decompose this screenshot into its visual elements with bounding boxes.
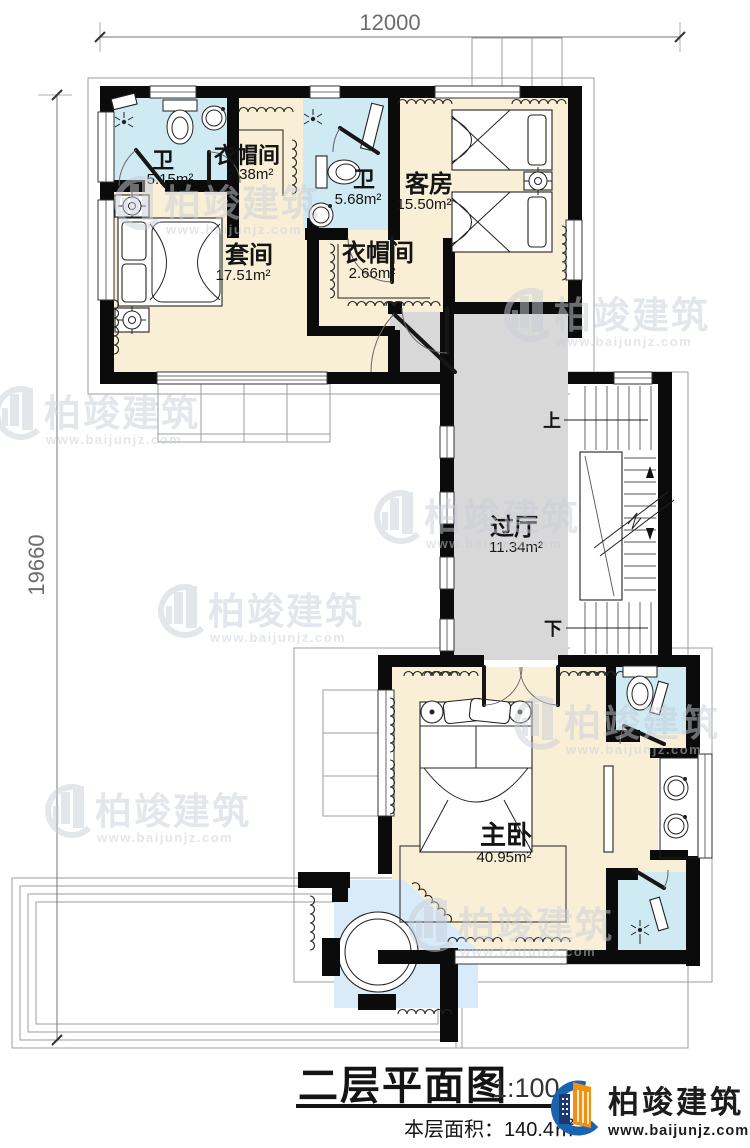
tv-stand — [604, 766, 613, 852]
window — [435, 86, 520, 98]
window — [310, 86, 340, 98]
floor-plan-page: 上 下 — [0, 0, 750, 1148]
bath1-name: 卫 — [152, 148, 174, 173]
watermark: 柏竣建筑 www.baijunjz.com — [117, 178, 320, 237]
window — [98, 112, 114, 182]
svg-text:柏竣建筑: 柏竣建筑 — [208, 590, 364, 632]
stair-down-label: 下 — [544, 619, 562, 639]
basin-bay-fill — [658, 758, 698, 858]
svg-text:柏竣建筑: 柏竣建筑 — [424, 496, 580, 538]
svg-text:www.baijunjz.com: www.baijunjz.com — [45, 432, 182, 447]
watermark: 柏竣建筑 www.baijunjz.com — [507, 290, 710, 349]
svg-text:柏竣建筑: 柏竣建筑 — [458, 904, 614, 946]
window — [378, 690, 394, 816]
brand-website: www.baijunjz.com — [607, 1123, 749, 1139]
window — [614, 372, 652, 384]
dimension-top: 12000 — [95, 10, 685, 52]
balcony-slider-window — [157, 372, 327, 384]
shower-fill — [610, 872, 686, 962]
sink-icon — [664, 776, 688, 800]
dimension-top-value: 12000 — [359, 10, 420, 35]
svg-text:www.baijunjz.com: www.baijunjz.com — [96, 830, 233, 845]
cloak2-name: 衣帽间 — [342, 239, 414, 267]
window — [566, 220, 582, 280]
cloak1-name: 衣帽间 — [214, 143, 280, 168]
svg-text:www.baijunjz.com: www.baijunjz.com — [209, 630, 346, 645]
svg-text:柏竣建筑: 柏竣建筑 — [95, 790, 251, 832]
brand-name: 柏竣建筑 — [608, 1085, 744, 1120]
svg-text:柏竣建筑: 柏竣建筑 — [44, 392, 200, 434]
svg-text:柏竣建筑: 柏竣建筑 — [564, 702, 720, 744]
master-side-balcony — [323, 690, 378, 816]
stair-up-label: 上 — [543, 411, 561, 431]
watermark: 柏竣建筑 www.baijunjz.com — [377, 492, 580, 551]
svg-text:www.baijunjz.com: www.baijunjz.com — [555, 334, 692, 349]
title-block: 二层平面图 1:100 本层面积：140.4㎡ 柏竣建筑 www.baijunj… — [296, 1064, 749, 1141]
stair-handrail — [580, 452, 622, 600]
svg-text:www.baijunjz.com: www.baijunjz.com — [165, 222, 302, 237]
bath2-area: 5.68m² — [335, 191, 382, 208]
sink-icon — [202, 106, 226, 130]
master-name: 主卧 — [480, 820, 532, 850]
svg-text:www.baijunjz.com: www.baijunjz.com — [459, 944, 596, 959]
svg-text:柏竣建筑: 柏竣建筑 — [164, 182, 320, 224]
window — [440, 619, 454, 651]
suite-name: 套间 — [225, 242, 273, 269]
window — [98, 200, 114, 300]
cloak2-area: 2.66m² — [349, 265, 396, 282]
floor-area-label: 本层面积：140.4㎡ — [404, 1117, 574, 1141]
chimney — [472, 38, 562, 88]
suite-area: 17.51m² — [215, 267, 270, 284]
watermark: 柏竣建筑 www.baijunjz.com — [517, 698, 720, 757]
window — [440, 557, 454, 589]
guest-area: 15.50m² — [396, 196, 451, 213]
hall-fill — [390, 312, 568, 660]
svg-text:www.baijunjz.com: www.baijunjz.com — [565, 742, 702, 757]
watermark: 柏竣建筑 www.baijunjz.com — [411, 900, 614, 959]
watermark: 柏竣建筑 www.baijunjz.com — [161, 586, 364, 645]
watermark: 柏竣建筑 www.baijunjz.com — [48, 786, 251, 845]
window — [150, 86, 196, 98]
title-underline — [296, 1104, 563, 1108]
plan-title: 二层平面图 — [298, 1064, 508, 1108]
master-area: 40.95m² — [476, 849, 531, 866]
window — [440, 426, 454, 458]
brand-logo — [555, 1082, 595, 1131]
dimension-left-value: 19660 — [24, 534, 49, 595]
sink-icon — [664, 814, 688, 838]
svg-text:www.baijunjz.com: www.baijunjz.com — [425, 536, 562, 551]
watermark: 柏竣建筑 www.baijunjz.com — [0, 388, 200, 447]
plan-scale: 1:100 — [492, 1073, 560, 1103]
cloak1-area: 2.38m² — [227, 166, 274, 183]
svg-text:柏竣建筑: 柏竣建筑 — [554, 294, 710, 336]
guest-name: 客房 — [405, 170, 453, 198]
bath2-name: 卫 — [353, 167, 375, 192]
floor-plan-drawing: 上 下 — [0, 0, 750, 1148]
bay-window — [698, 754, 712, 858]
